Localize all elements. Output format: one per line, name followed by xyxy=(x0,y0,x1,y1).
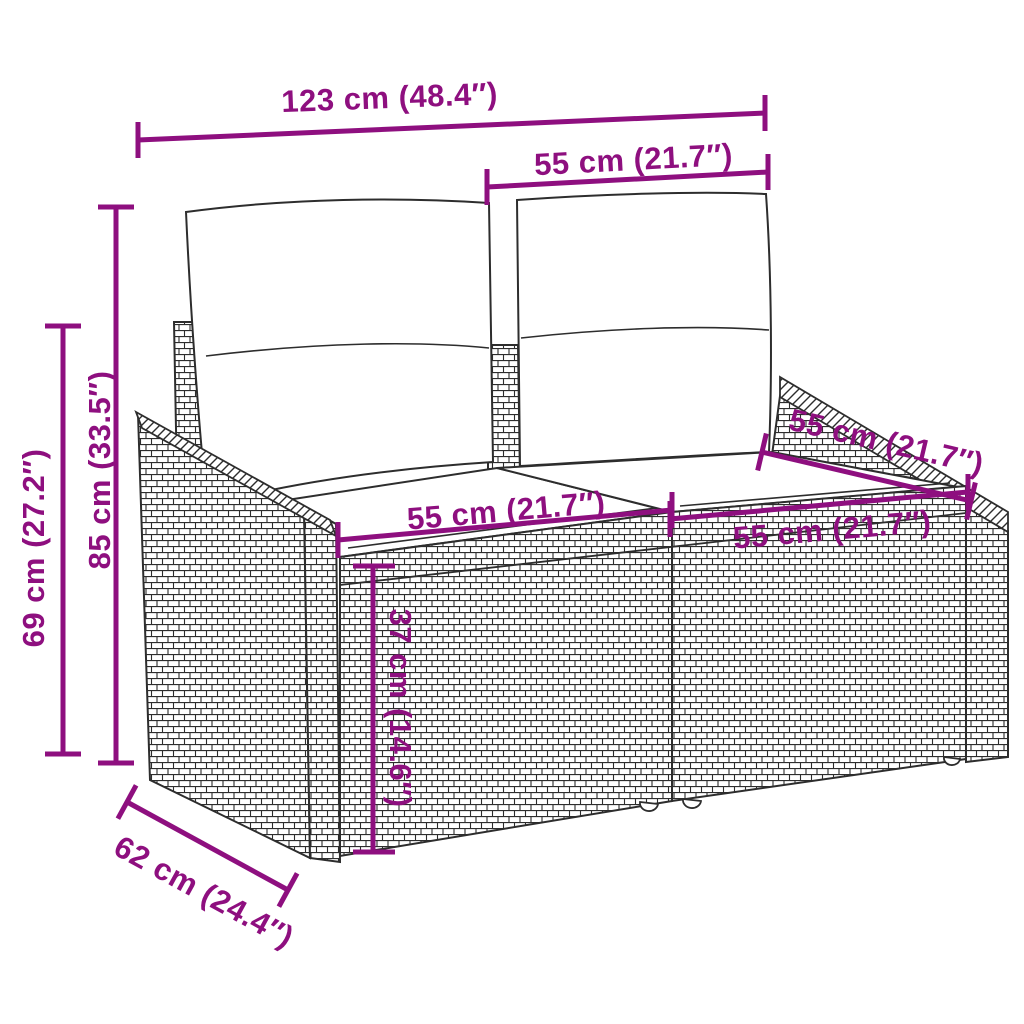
left-armrest-front-face xyxy=(304,506,340,862)
sofa-foot xyxy=(640,802,658,811)
dim-armrest-height-label: 69 cm (27.2″) xyxy=(16,449,51,648)
back-cushion-right xyxy=(517,193,771,466)
sofa-foot xyxy=(683,799,701,808)
sofa-foot xyxy=(944,757,960,765)
dim-overall-height-label: 85 cm (33.5″) xyxy=(82,371,117,570)
dim-seat-height-label: 37 cm (14.6″) xyxy=(383,609,418,808)
dim-overall-depth-label: 62 cm (24.4″) xyxy=(108,829,299,955)
dim-armrest-height: 69 cm (27.2″) xyxy=(16,326,81,754)
dim-overall-width-label: 123 cm (48.4″) xyxy=(281,76,499,119)
dim-overall-height: 85 cm (33.5″) xyxy=(82,207,134,763)
product-dimension-diagram: 123 cm (48.4″) 55 cm (21.7″) 85 cm (33.5… xyxy=(0,0,1024,1024)
diagram-canvas: 123 cm (48.4″) 55 cm (21.7″) 85 cm (33.5… xyxy=(0,0,1024,1024)
